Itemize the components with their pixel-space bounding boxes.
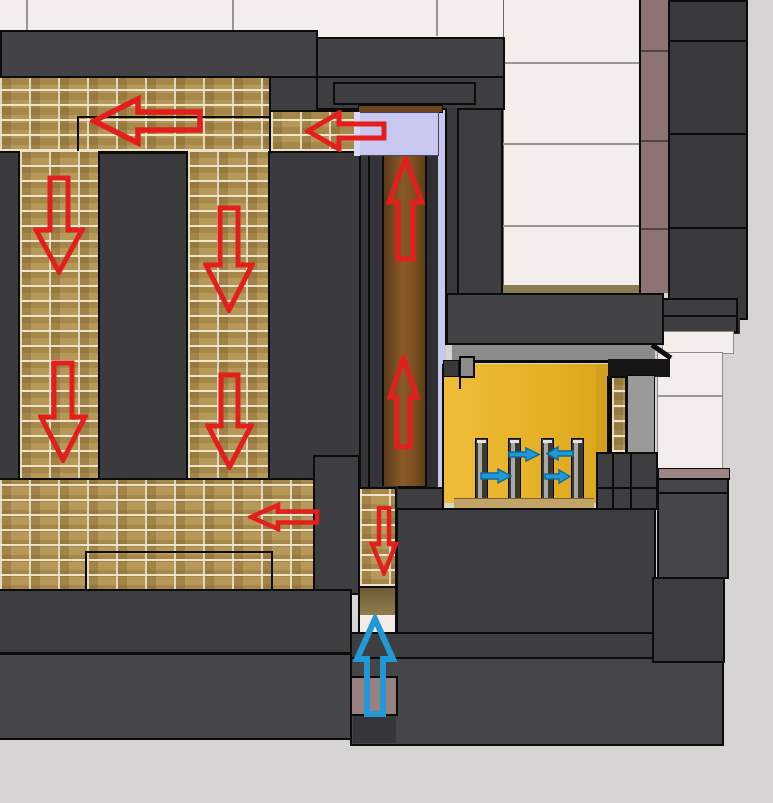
firebox-air-notch-dark [443,360,459,377]
wall-joint-line [436,0,438,36]
mantel-beam [446,293,664,345]
side-wall-dark-column [668,0,748,320]
side-wall-cream-column [503,0,639,293]
firebox-notch-line [459,377,461,389]
exhaust-duct-olive [358,588,397,615]
wall-joint-line [503,225,639,227]
firebox-air-notch-gray [459,356,475,378]
firebox-step-blocks [596,452,658,510]
room-wall-top-mid [317,0,504,38]
wall-joint-line [639,228,669,230]
wall-joint-line [232,0,234,30]
lower-flue-inner-edge [85,551,273,593]
grate-bar-top-4 [573,440,582,443]
intake-duct-base [353,716,396,743]
air-arrow-grate-3 [478,466,514,486]
hot-gas-arrow-bypass-to-top-channel [305,110,387,152]
air-arrow-grate-4 [543,467,572,486]
bypass-frame-inner-edge [333,82,476,105]
firebox-side-brick-post [610,376,627,454]
firebox-side-edge [607,376,610,454]
grate-bar-top-2 [510,440,519,443]
base-plinth-left [0,653,362,740]
hearth-foundation-block [396,508,656,635]
side-wall-block [662,331,734,354]
riser-casing-edge [359,110,361,506]
exhaust-channel-left-wall [313,455,360,595]
wall-joint-line [658,395,722,397]
air-arrow-grate-1 [506,445,542,464]
step-joint-line [612,454,614,508]
wall-joint-line [670,133,746,135]
grate-bar-top-3 [543,440,552,443]
air-arrow-grate-2 [544,444,576,463]
hot-gas-arrow-downdraft-right-lower [205,372,254,470]
wall-joint-line [503,143,639,145]
side-wall-mauve-face [639,0,669,293]
step-joint-line [663,315,736,317]
heater-top-cap-left [0,30,318,78]
hot-gas-arrow-downdraft-left-upper [33,175,85,275]
model-viewport[interactable] [0,0,773,803]
heater-top-cap-right [316,37,505,78]
wall-joint-line [670,227,746,229]
step-joint-line [630,454,632,508]
base-plinth-right [350,657,724,746]
step-joint-line [598,487,656,489]
riser-casing-left-strip [361,108,382,508]
wall-joint-line [670,40,746,42]
riser-casing-edge [368,110,370,506]
hot-gas-arrow-exhaust-duct-down [369,506,399,576]
air-arrow-intake-duct-up [353,615,397,718]
hot-gas-arrow-downdraft-left-lower [38,360,88,463]
hot-gas-arrow-bottom-channel-left [248,502,320,532]
base-joint-line [659,492,727,494]
right-base-column-lower [652,577,725,663]
hot-gas-arrow-riser-lower [387,355,420,450]
hot-gas-arrow-top-channel-left-large [90,95,204,147]
grate-bar-top-1 [477,440,486,443]
hot-gas-arrow-riser-upper [386,156,425,262]
hot-gas-arrow-downdraft-right-upper [203,205,255,313]
room-wall-top-left [0,0,318,31]
wall-joint-line [639,50,669,52]
base-band-left [0,589,352,654]
wall-joint-line [503,62,639,64]
wall-joint-line [639,140,669,142]
upper-flue-corner-block [269,76,318,113]
wall-joint-line [26,0,28,30]
firebox-side-gray-strip [627,375,655,454]
